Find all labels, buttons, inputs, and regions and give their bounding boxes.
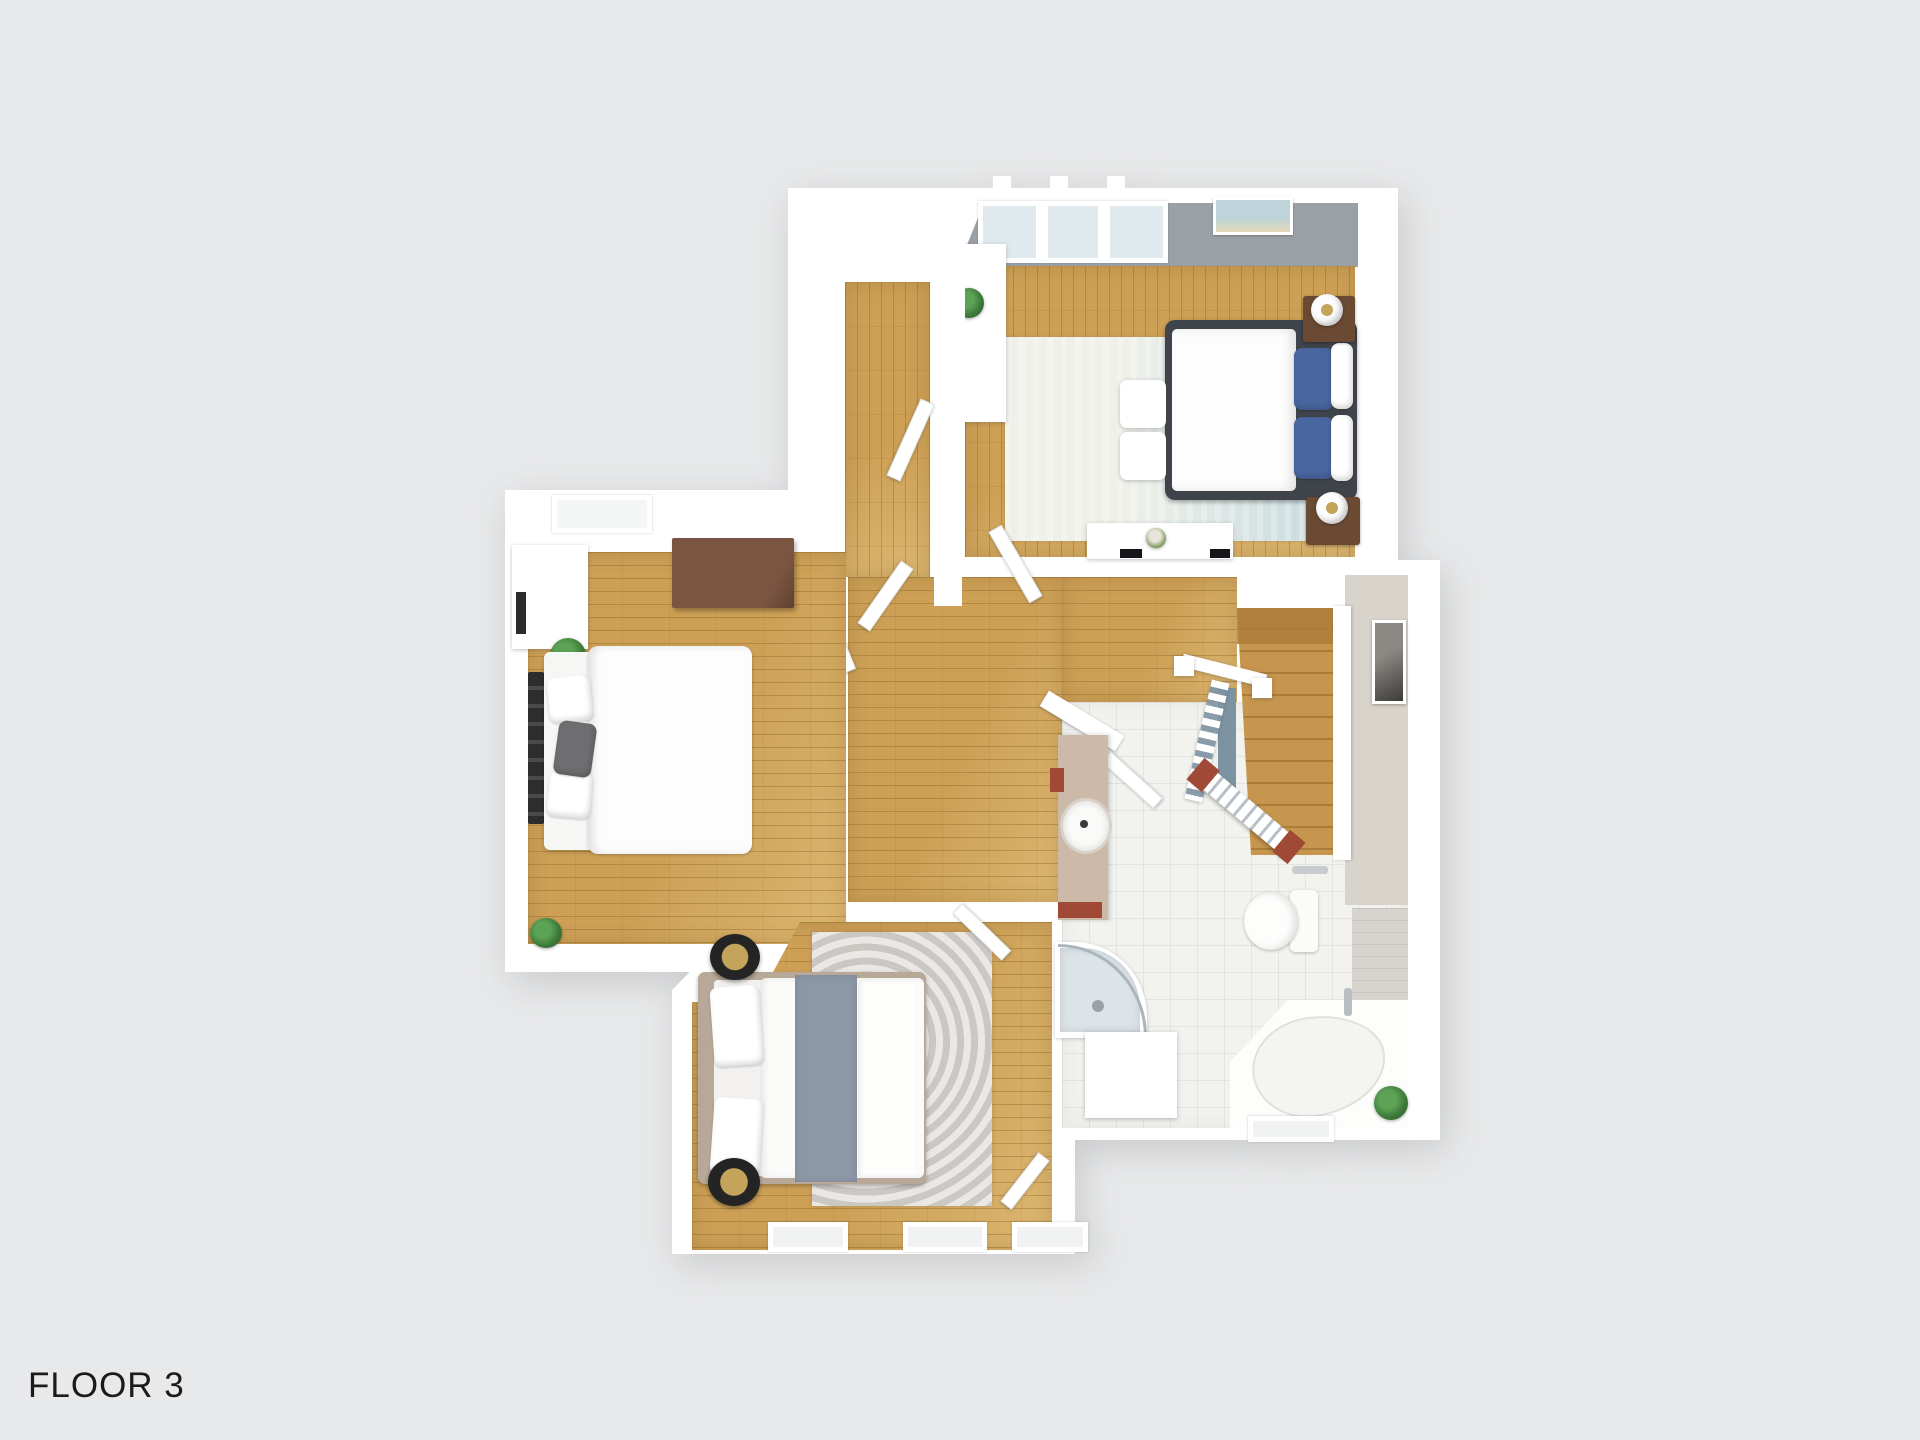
bottom-bed-blanket bbox=[795, 975, 857, 1182]
bottom-window bbox=[903, 1222, 987, 1252]
left-pillow-white bbox=[546, 674, 595, 724]
window-glass bbox=[1017, 1227, 1083, 1247]
master-pillow-white bbox=[1331, 343, 1353, 409]
bottom-side-table bbox=[708, 1158, 760, 1206]
vanity-accent bbox=[1058, 902, 1102, 918]
table-lamp bbox=[1311, 294, 1343, 326]
window-glass bbox=[983, 206, 1163, 258]
hallway-floor bbox=[848, 577, 1062, 902]
corridor-divider-wall bbox=[930, 203, 965, 577]
dresser-flowers bbox=[1146, 528, 1166, 548]
left-bedroom-skylight bbox=[552, 495, 652, 533]
floor-label: FLOOR 3 bbox=[28, 1366, 185, 1406]
shower-drain bbox=[1092, 1000, 1104, 1012]
stair-newel-post bbox=[1174, 656, 1194, 676]
floor-plan-canvas: FLOOR 3 bbox=[0, 0, 1920, 1440]
bathroom-window bbox=[1248, 1116, 1334, 1142]
floor-plan bbox=[0, 0, 1920, 1440]
bathroom-cabinet bbox=[1085, 1032, 1177, 1118]
master-pillow-blue bbox=[1294, 417, 1334, 479]
left-bed-headboard bbox=[528, 672, 544, 824]
master-window-band bbox=[978, 201, 1168, 263]
dresser-accent bbox=[1120, 549, 1142, 558]
bottom-side-table bbox=[710, 934, 760, 980]
table-lamp bbox=[1316, 492, 1348, 524]
left-bed-duvet bbox=[588, 646, 752, 854]
hall-wall-stub bbox=[934, 556, 962, 606]
master-mattress bbox=[1172, 329, 1296, 491]
window-glass bbox=[1253, 1121, 1329, 1137]
left-pillow-gray bbox=[552, 720, 597, 779]
bottom-pillow-white bbox=[709, 984, 764, 1067]
landing-wall-art bbox=[1372, 620, 1406, 704]
stair-top-riser bbox=[1237, 608, 1345, 644]
window-tab bbox=[1107, 176, 1125, 192]
master-ottoman bbox=[1120, 380, 1166, 428]
window-tab bbox=[1050, 176, 1068, 192]
window-glass bbox=[908, 1227, 982, 1247]
toilet-bowl bbox=[1244, 892, 1298, 950]
stair-stringer bbox=[1333, 606, 1351, 860]
bottom-bed-sheet bbox=[858, 980, 916, 1177]
sink-drain bbox=[1080, 820, 1088, 828]
vanity-accent bbox=[1050, 768, 1064, 792]
window-mullion bbox=[1036, 201, 1048, 263]
window-mullion bbox=[1098, 201, 1110, 263]
stair-newel-post bbox=[1252, 678, 1272, 698]
window-tab bbox=[993, 176, 1011, 192]
master-ottoman bbox=[1120, 432, 1166, 480]
bottom-window bbox=[1012, 1222, 1088, 1252]
towel-bar bbox=[1292, 866, 1328, 874]
bathtub-plant bbox=[1374, 1086, 1408, 1120]
master-pillow-blue bbox=[1294, 348, 1334, 410]
skylight-glass bbox=[557, 500, 647, 528]
bottom-window bbox=[768, 1222, 848, 1252]
left-brown-dresser bbox=[672, 538, 794, 608]
master-pillow-white bbox=[1331, 415, 1353, 481]
shelf-screen bbox=[516, 592, 526, 634]
left-pillow-white bbox=[546, 770, 594, 820]
dresser-accent bbox=[1210, 549, 1230, 558]
left-floor-plant bbox=[530, 918, 562, 948]
bathtub-faucet bbox=[1344, 988, 1352, 1016]
window-glass bbox=[773, 1227, 843, 1247]
beach-wall-art bbox=[1213, 197, 1293, 235]
